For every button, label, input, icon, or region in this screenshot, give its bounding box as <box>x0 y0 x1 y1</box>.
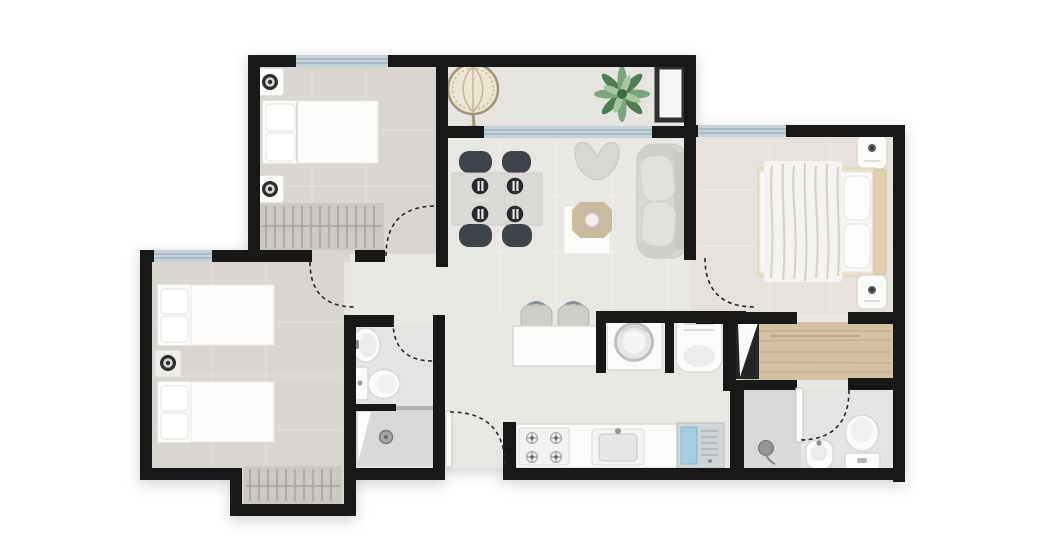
wall-segment <box>248 55 260 262</box>
nightstand <box>256 68 284 96</box>
toilet <box>845 415 880 469</box>
window <box>296 55 388 67</box>
dining-chair <box>459 224 492 247</box>
pillow <box>844 176 870 220</box>
shower-head <box>759 441 774 456</box>
wall-segment <box>140 250 152 480</box>
dining-table <box>452 173 542 225</box>
burner <box>527 433 538 444</box>
wall-segment <box>433 315 445 480</box>
utility-washboard-sink <box>677 423 724 468</box>
wall-segment <box>344 468 445 480</box>
wall-segment <box>503 468 745 480</box>
toilet <box>353 367 400 400</box>
wall-segment <box>344 315 356 516</box>
place-setting <box>472 178 489 195</box>
wardrobe-mirror <box>735 317 759 379</box>
wall-segment <box>730 380 797 390</box>
plant <box>594 66 650 122</box>
double-bed <box>262 100 379 164</box>
washbasin <box>806 440 833 469</box>
kitchen-sink <box>592 428 644 465</box>
door-leaf-bathroom-right <box>796 388 803 442</box>
floor-plan <box>140 55 905 516</box>
wall-segment <box>596 311 606 373</box>
wall-segment <box>684 55 696 260</box>
wall-segment <box>140 468 242 480</box>
wall-segment <box>355 250 385 262</box>
dining-chair <box>502 224 532 247</box>
nightstand <box>857 275 887 309</box>
nightstand <box>155 350 181 377</box>
wardrobe <box>244 466 342 504</box>
place-setting <box>507 178 524 195</box>
wall-segment <box>436 55 696 67</box>
place-setting <box>472 206 489 223</box>
window <box>154 250 212 262</box>
dining-chair <box>459 151 492 173</box>
twin-bed <box>157 381 275 443</box>
wall-segment <box>344 315 394 327</box>
wall-segment <box>665 311 674 373</box>
twin-bed <box>157 284 275 346</box>
window <box>698 125 786 137</box>
wall-segment <box>730 380 744 480</box>
cooktop <box>519 428 569 465</box>
entry-door-leaf <box>446 411 452 467</box>
wall-segment <box>230 504 356 516</box>
headboard <box>874 170 886 274</box>
coffee-table <box>564 202 612 254</box>
nightstand <box>256 175 284 203</box>
wall-segment <box>848 378 893 390</box>
shower-half-wall <box>344 404 396 411</box>
floor-shower-right <box>744 388 801 468</box>
nightstand <box>857 135 887 169</box>
wall-segment <box>436 55 448 267</box>
double-bed <box>758 161 886 282</box>
burner <box>551 452 562 463</box>
wardrobe <box>260 203 384 250</box>
dining-chair <box>502 151 531 173</box>
floor-plan-page <box>0 0 1048 560</box>
floor-plan-canvas <box>0 0 1048 560</box>
wall-segment <box>848 312 893 324</box>
pillow <box>844 224 870 268</box>
breakfast-bar <box>513 326 601 366</box>
wall-segment <box>696 312 797 324</box>
burner <box>527 452 538 463</box>
place-setting <box>507 206 524 223</box>
blanket <box>764 161 842 282</box>
sofa <box>637 144 688 258</box>
wall-segment <box>731 468 905 480</box>
washing-machine <box>607 315 662 370</box>
burner <box>551 433 562 444</box>
sliding-glass-door <box>484 126 652 138</box>
wall-segment <box>893 125 905 482</box>
washbasin <box>352 328 380 362</box>
bench <box>657 67 684 120</box>
